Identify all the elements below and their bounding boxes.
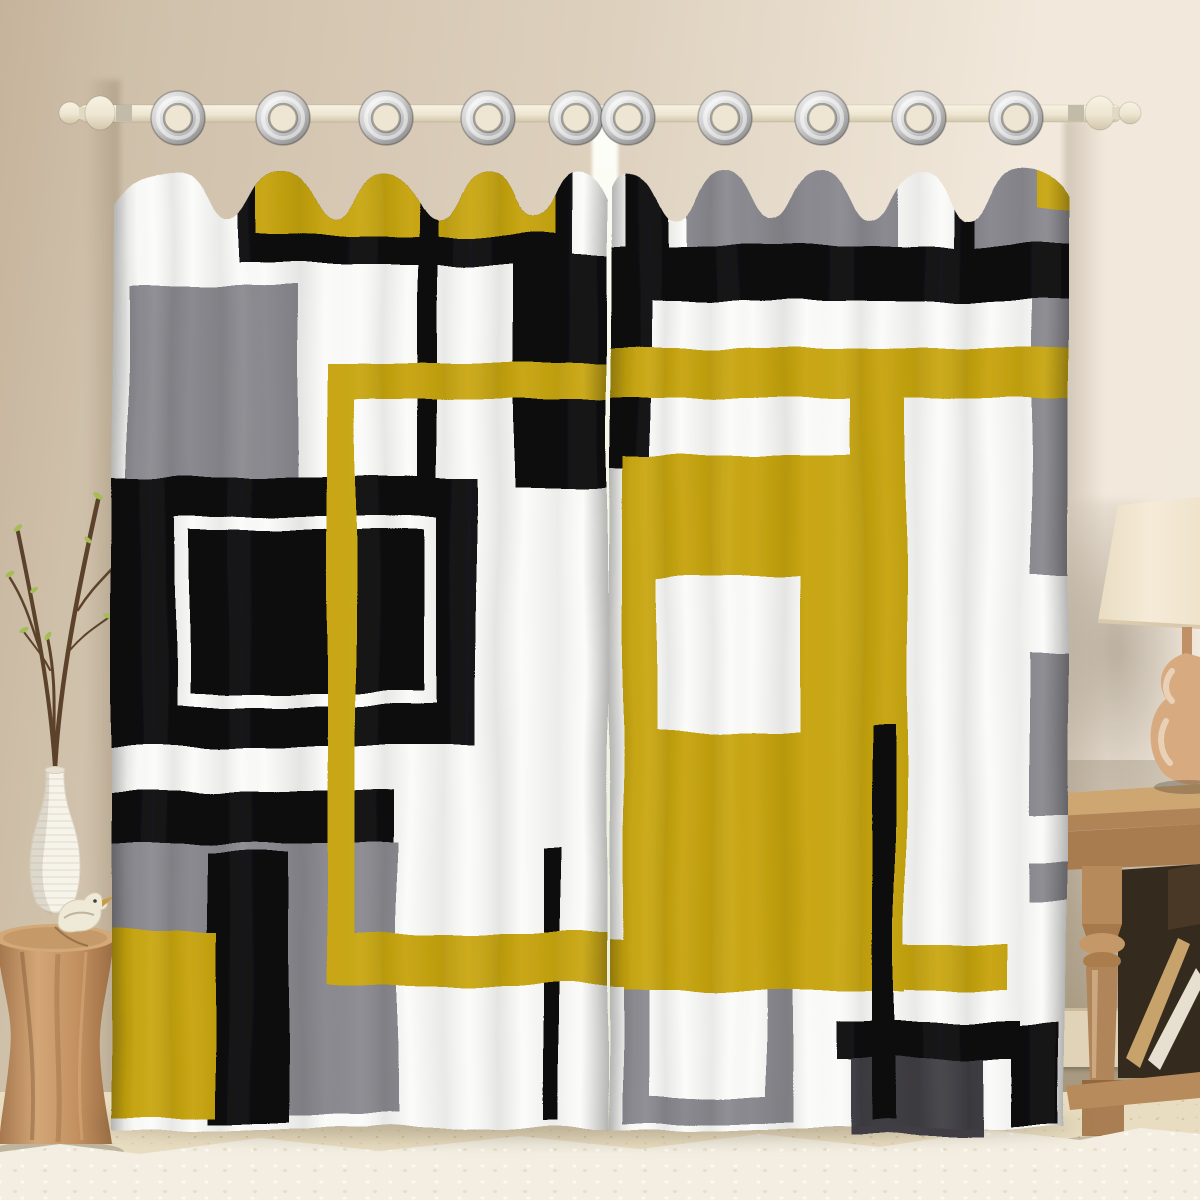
- grommet: [151, 91, 205, 145]
- curtain-panel-left: [93, 64, 627, 1164]
- vase: [30, 767, 80, 915]
- stool-grain: [57, 954, 59, 1142]
- edge-shade: [1043, 86, 1067, 1128]
- grommet-row: [40, 80, 1160, 170]
- right-panel-pattern: [611, 86, 1067, 1136]
- grommet: [549, 91, 603, 145]
- lamp-base-shadow: [1154, 780, 1200, 794]
- grommet: [359, 91, 413, 145]
- grommet: [892, 91, 946, 145]
- lamp-base: [1151, 653, 1200, 784]
- lamp-shade: [1098, 497, 1200, 627]
- grommet: [795, 91, 849, 145]
- table-lamp: [1088, 495, 1200, 800]
- curtain-panel-right: [591, 64, 1087, 1164]
- left-panel-pattern: [113, 86, 607, 1128]
- grommet: [256, 91, 310, 145]
- room-photo: [0, 0, 1200, 1200]
- table-drawer: [1168, 864, 1200, 930]
- grommet: [989, 91, 1043, 145]
- lamp-neck: [1182, 627, 1192, 655]
- grommet: [601, 91, 655, 145]
- grommet: [698, 91, 752, 145]
- grommet: [461, 91, 515, 145]
- fabric-folds: [611, 86, 1067, 1128]
- edge-shade: [611, 86, 635, 1128]
- edge-shade: [113, 86, 137, 1128]
- fabric-folds: [113, 86, 607, 1128]
